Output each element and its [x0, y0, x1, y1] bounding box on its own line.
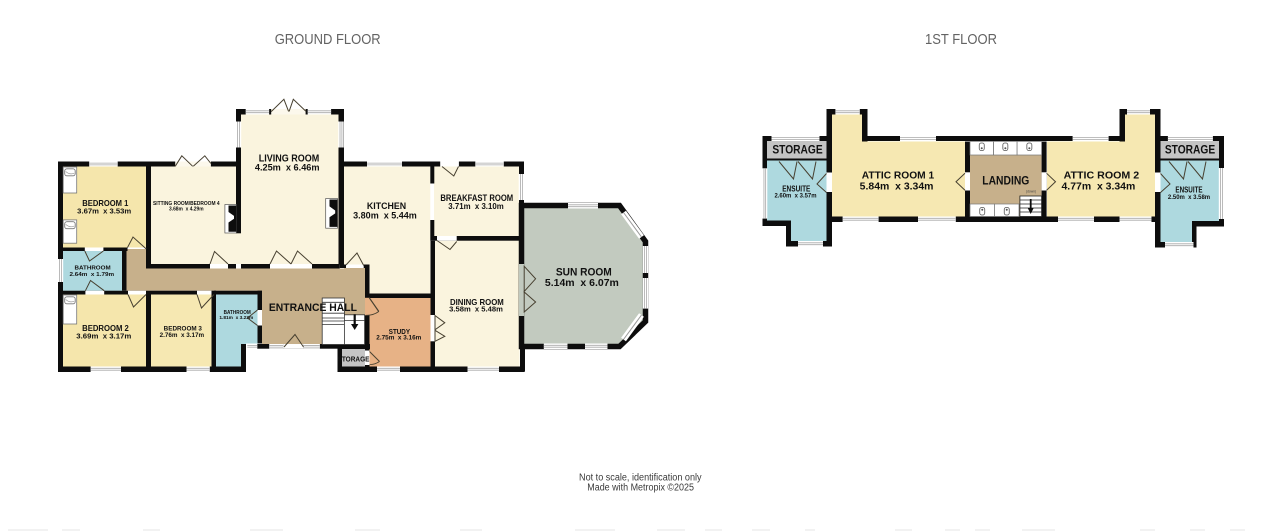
svg-text:3.68m x 4.29m: 3.68m x 4.29m [169, 206, 204, 212]
svg-text:GROUND FLOOR: GROUND FLOOR [275, 32, 381, 48]
svg-text:BATHROOM: BATHROOM [75, 266, 111, 272]
svg-text:BEDROOM 3: BEDROOM 3 [164, 326, 203, 333]
svg-text:1ST FLOOR: 1ST FLOOR [925, 32, 997, 48]
svg-text:3.58m x 5.48m: 3.58m x 5.48m [449, 306, 503, 313]
svg-text:2.50m x 3.58m: 2.50m x 3.58m [1168, 194, 1211, 201]
svg-text:5.84m x 3.34m: 5.84m x 3.34m [860, 182, 934, 193]
svg-text:3.67m x 3.53m: 3.67m x 3.53m [77, 207, 131, 216]
svg-text:3.69m x 3.17m: 3.69m x 3.17m [76, 331, 131, 340]
svg-text:2.64m x 1.79m: 2.64m x 1.79m [70, 272, 115, 278]
svg-text:5.14m x 6.07m: 5.14m x 6.07m [545, 278, 619, 289]
svg-text:SUN ROOM: SUN ROOM [556, 266, 612, 278]
svg-text:3.71m x 3.10m: 3.71m x 3.10m [448, 202, 503, 211]
svg-text:Made with Metropix ©2025: Made with Metropix ©2025 [587, 482, 694, 493]
svg-text:ATTIC ROOM 2: ATTIC ROOM 2 [1064, 171, 1140, 182]
svg-text:4.25m x 6.46m: 4.25m x 6.46m [255, 163, 320, 173]
svg-text:STORAGE: STORAGE [338, 357, 370, 364]
svg-text:2.60m x 3.57m: 2.60m x 3.57m [774, 192, 816, 199]
svg-text:STORAGE: STORAGE [1165, 143, 1215, 157]
svg-text:LANDING: LANDING [982, 175, 1029, 188]
svg-text:STORAGE: STORAGE [772, 142, 822, 156]
svg-text:4.77m x 3.34m: 4.77m x 3.34m [1062, 182, 1136, 193]
svg-text:ATTIC ROOM 1: ATTIC ROOM 1 [862, 171, 935, 182]
svg-text:(down): (down) [1026, 190, 1036, 194]
svg-text:3.80m x 5.44m: 3.80m x 5.44m [353, 210, 417, 220]
svg-text:2.75m x 3.16m: 2.75m x 3.16m [376, 335, 421, 342]
svg-text:1.81m x 3.23m: 1.81m x 3.23m [219, 315, 253, 320]
svg-text:ENTRANCE HALL: ENTRANCE HALL [269, 302, 357, 314]
svg-text:2.76m x 3.17m: 2.76m x 3.17m [160, 333, 205, 339]
